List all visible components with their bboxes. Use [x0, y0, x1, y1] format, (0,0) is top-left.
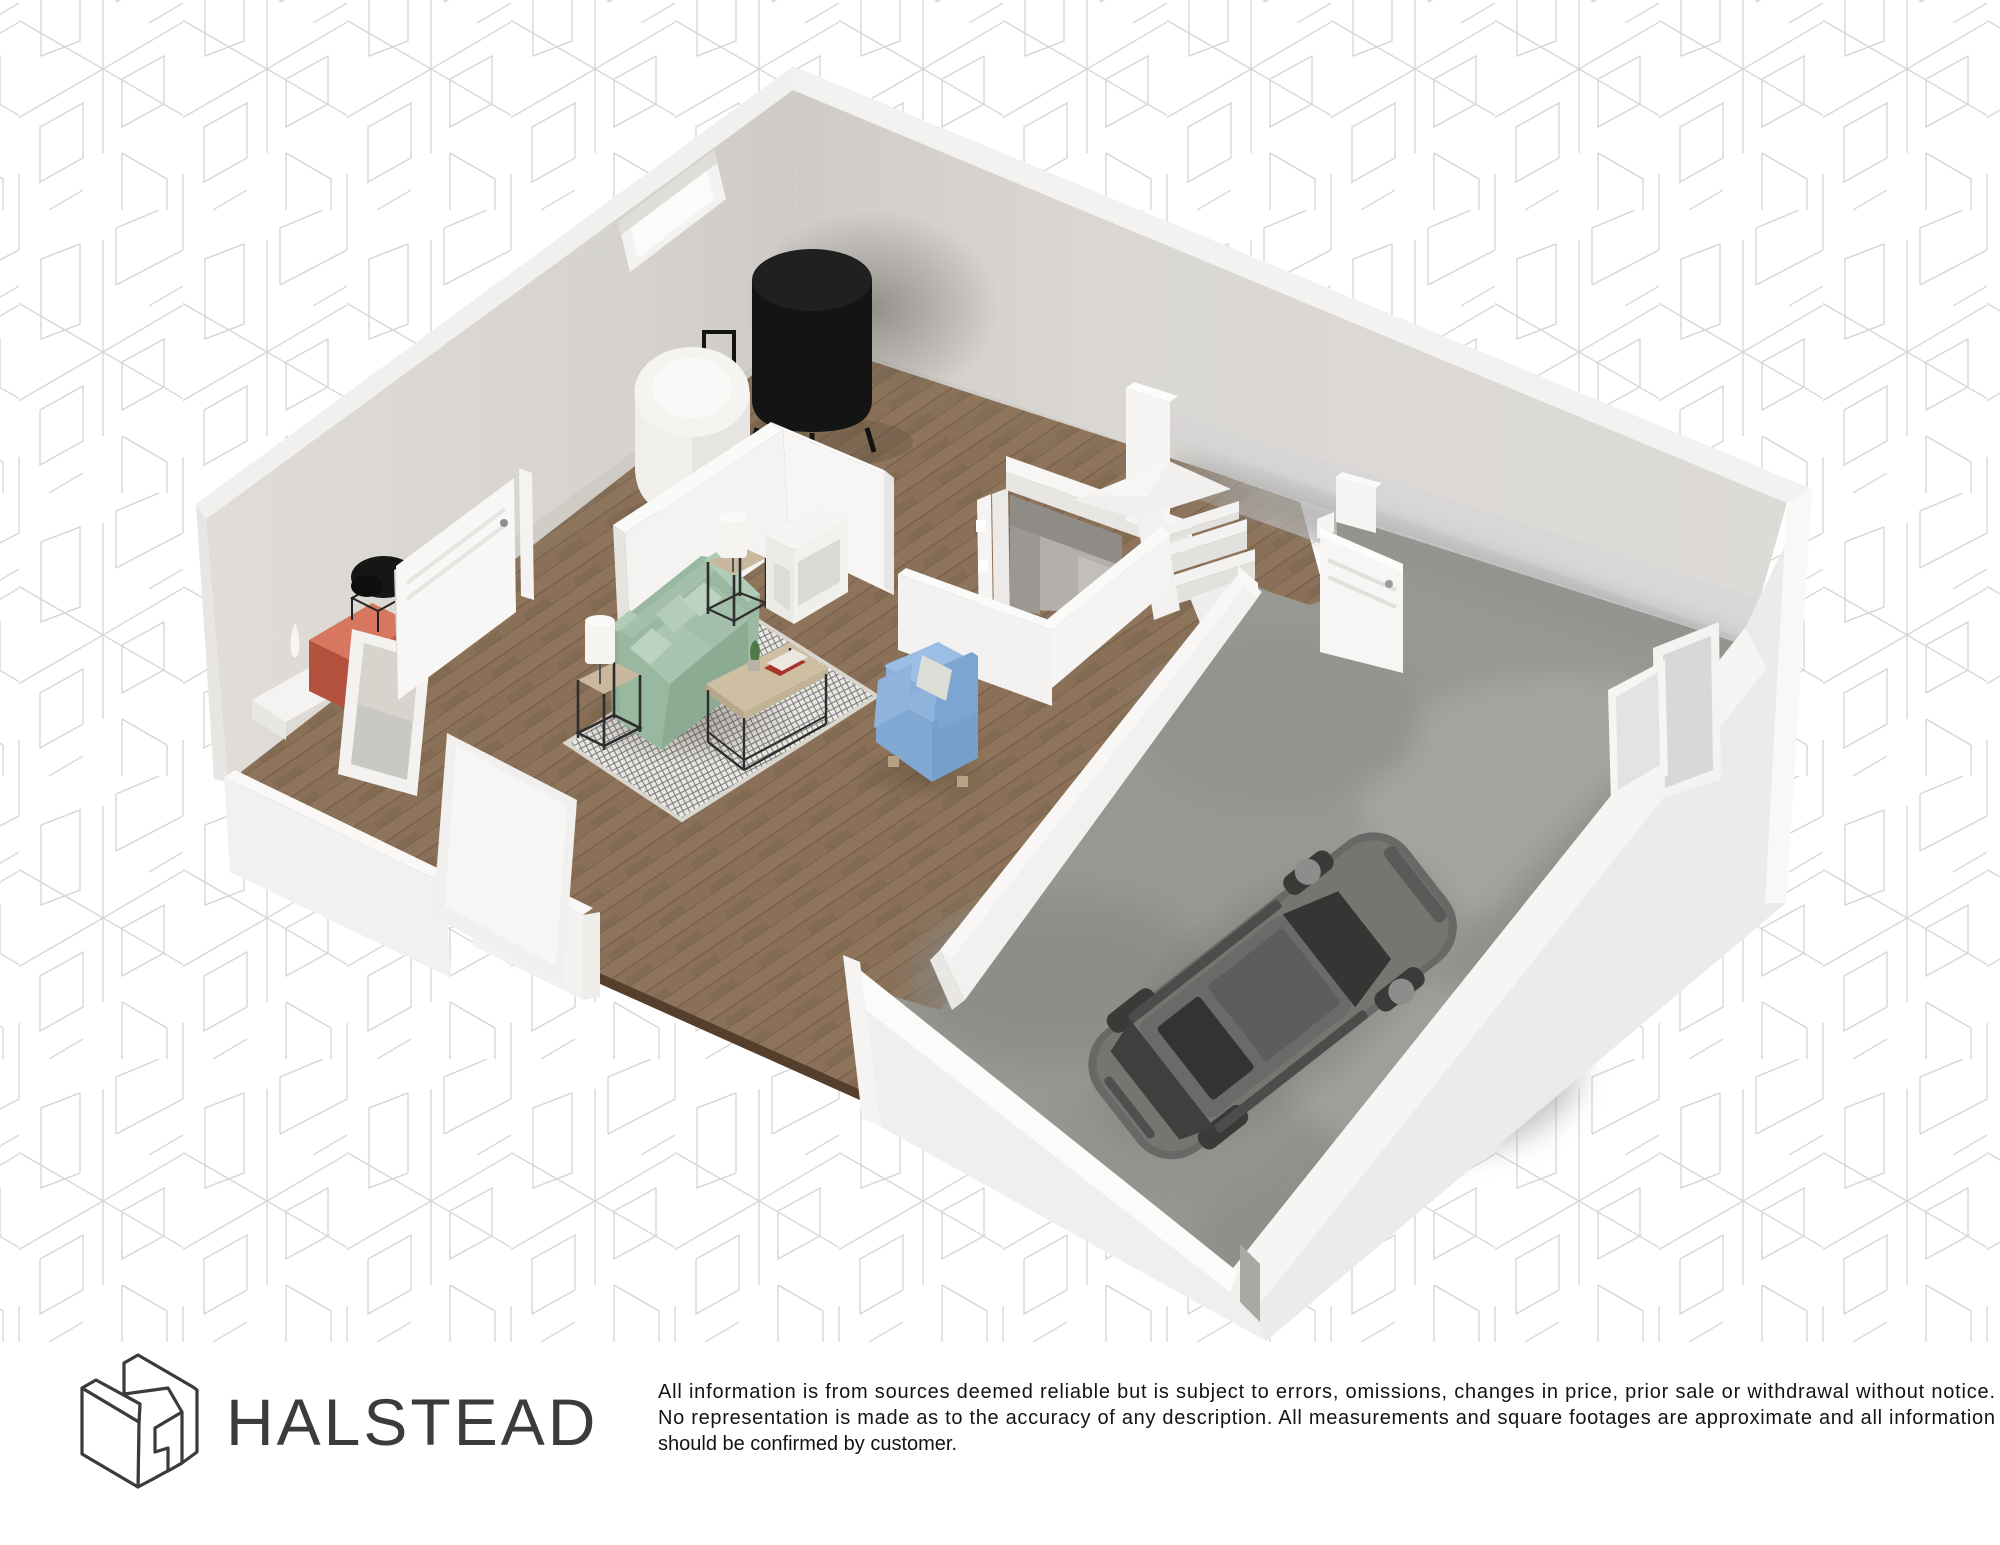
svg-text:HALSTEAD: HALSTEAD: [226, 1385, 598, 1459]
svg-text:No representation is made as t: No representation is made as to the accu…: [658, 1407, 1995, 1429]
svg-text:All information is from source: All information is from sources deemed r…: [658, 1381, 1995, 1403]
svg-text:should be confirmed by custome: should be confirmed by customer.: [658, 1433, 957, 1455]
